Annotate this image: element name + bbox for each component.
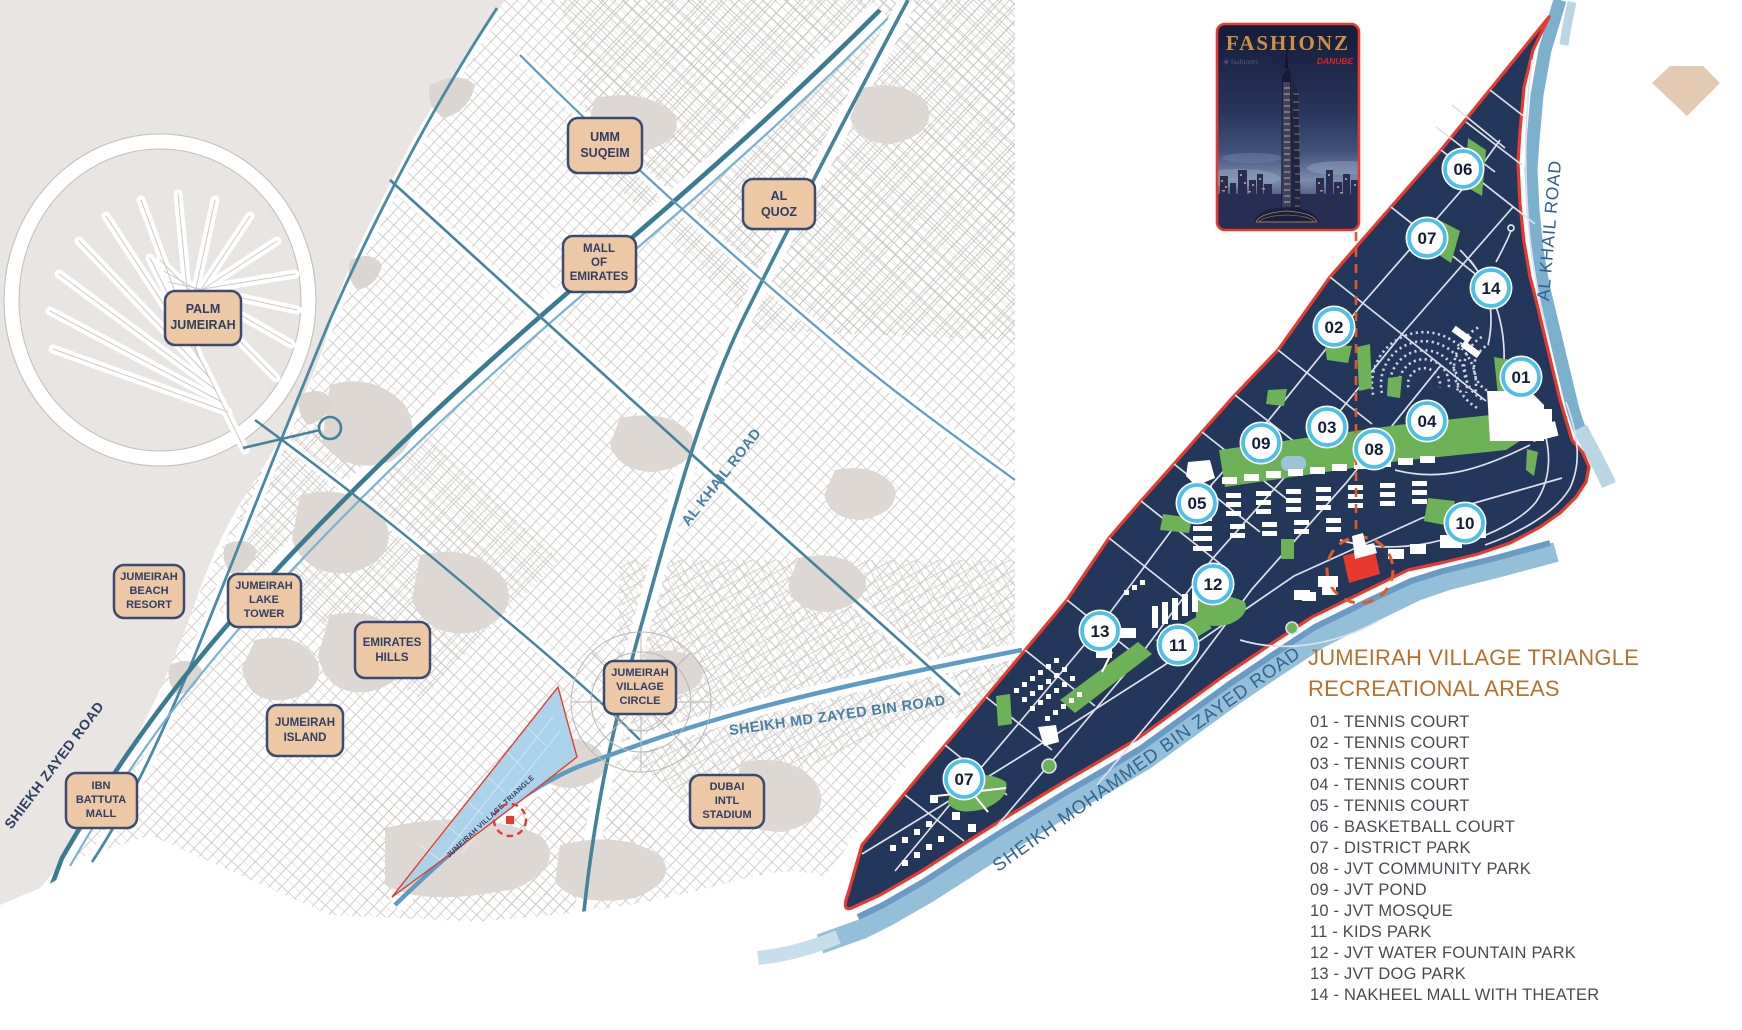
svg-text:11: 11 — [1169, 636, 1187, 655]
svg-text:CIRCLE: CIRCLE — [620, 695, 661, 707]
svg-text:QUOZ: QUOZ — [761, 205, 797, 219]
svg-text:JUMEIRAH: JUMEIRAH — [611, 667, 669, 679]
svg-text:03: 03 — [1318, 418, 1337, 437]
svg-text:10: 10 — [1456, 514, 1475, 533]
svg-text:JUMEIRAH VILLAGE TRIANGLE: JUMEIRAH VILLAGE TRIANGLE — [1308, 645, 1639, 670]
svg-text:12: 12 — [1204, 575, 1223, 594]
svg-text:RECREATIONAL AREAS: RECREATIONAL AREAS — [1308, 676, 1560, 701]
svg-text:LAKE: LAKE — [249, 594, 279, 606]
svg-text:DUBAI: DUBAI — [710, 781, 745, 793]
svg-text:14: 14 — [1482, 279, 1501, 298]
svg-text:02: 02 — [1325, 318, 1344, 337]
svg-text:08: 08 — [1365, 440, 1384, 459]
svg-text:BATTUTA: BATTUTA — [76, 794, 126, 806]
svg-text:JUMEIRAH: JUMEIRAH — [170, 318, 235, 332]
svg-text:PALM: PALM — [186, 302, 221, 316]
svg-text:07: 07 — [1418, 229, 1437, 248]
svg-text:INTL: INTL — [715, 795, 740, 807]
svg-text:11 - KIDS PARK: 11 - KIDS PARK — [1310, 923, 1431, 941]
svg-text:RESORT: RESORT — [126, 599, 172, 611]
svg-text:IBN: IBN — [92, 780, 111, 792]
svg-text:SUQEIM: SUQEIM — [580, 146, 629, 160]
svg-text:OF: OF — [591, 257, 607, 269]
svg-text:EMIRATES: EMIRATES — [570, 271, 629, 283]
svg-text:EMIRATES: EMIRATES — [363, 637, 422, 649]
svg-text:HILLS: HILLS — [375, 652, 409, 664]
svg-text:04 - TENNIS COURT: 04 - TENNIS COURT — [1310, 776, 1470, 794]
svg-text:10 - JVT MOSQUE: 10 - JVT MOSQUE — [1310, 902, 1453, 920]
svg-text:07 - DISTRICT PARK: 07 - DISTRICT PARK — [1310, 839, 1471, 857]
svg-text:06 - BASKETBALL COURT: 06 - BASKETBALL COURT — [1310, 818, 1515, 836]
svg-text:UMM: UMM — [590, 130, 620, 144]
svg-text:05 - TENNIS COURT: 05 - TENNIS COURT — [1310, 797, 1470, 815]
svg-text:VILLAGE: VILLAGE — [616, 681, 664, 693]
svg-text:05: 05 — [1188, 494, 1207, 513]
svg-text:◈ fashiontv: ◈ fashiontv — [1223, 57, 1259, 66]
svg-text:TOWER: TOWER — [244, 608, 285, 620]
svg-text:MALL: MALL — [583, 243, 615, 255]
svg-text:ISLAND: ISLAND — [284, 732, 327, 744]
svg-text:DANUBE: DANUBE — [1317, 56, 1354, 66]
svg-text:02 - TENNIS COURT: 02 - TENNIS COURT — [1310, 734, 1470, 752]
svg-text:FASHIONZ: FASHIONZ — [1226, 31, 1350, 55]
svg-text:01 - TENNIS COURT: 01 - TENNIS COURT — [1310, 713, 1470, 731]
svg-text:09 - JVT POND: 09 - JVT POND — [1310, 881, 1427, 899]
svg-text:03 - TENNIS COURT: 03 - TENNIS COURT — [1310, 755, 1470, 773]
svg-text:AL: AL — [771, 189, 788, 203]
svg-text:13 - JVT DOG PARK: 13 - JVT DOG PARK — [1310, 965, 1466, 983]
svg-text:08 - JVT COMMUNITY PARK: 08 - JVT COMMUNITY PARK — [1310, 860, 1531, 878]
svg-text:06: 06 — [1454, 160, 1473, 179]
svg-text:STADIUM: STADIUM — [702, 809, 751, 821]
svg-text:JUMEIRAH: JUMEIRAH — [275, 717, 335, 729]
svg-text:07: 07 — [955, 770, 974, 789]
svg-text:12 - JVT WATER FOUNTAIN PARK: 12 - JVT WATER FOUNTAIN PARK — [1310, 944, 1576, 962]
svg-text:JUMEIRAH: JUMEIRAH — [235, 580, 293, 592]
svg-text:01: 01 — [1512, 368, 1531, 387]
svg-text:09: 09 — [1252, 434, 1271, 453]
svg-text:14 - NAKHEEL MALL WITH THEATER: 14 - NAKHEEL MALL WITH THEATER — [1310, 986, 1599, 1004]
svg-text:13: 13 — [1091, 622, 1110, 641]
svg-text:04: 04 — [1418, 412, 1437, 431]
svg-text:MALL: MALL — [86, 808, 117, 820]
svg-text:BEACH: BEACH — [129, 585, 168, 597]
svg-text:JUMEIRAH: JUMEIRAH — [120, 571, 178, 583]
